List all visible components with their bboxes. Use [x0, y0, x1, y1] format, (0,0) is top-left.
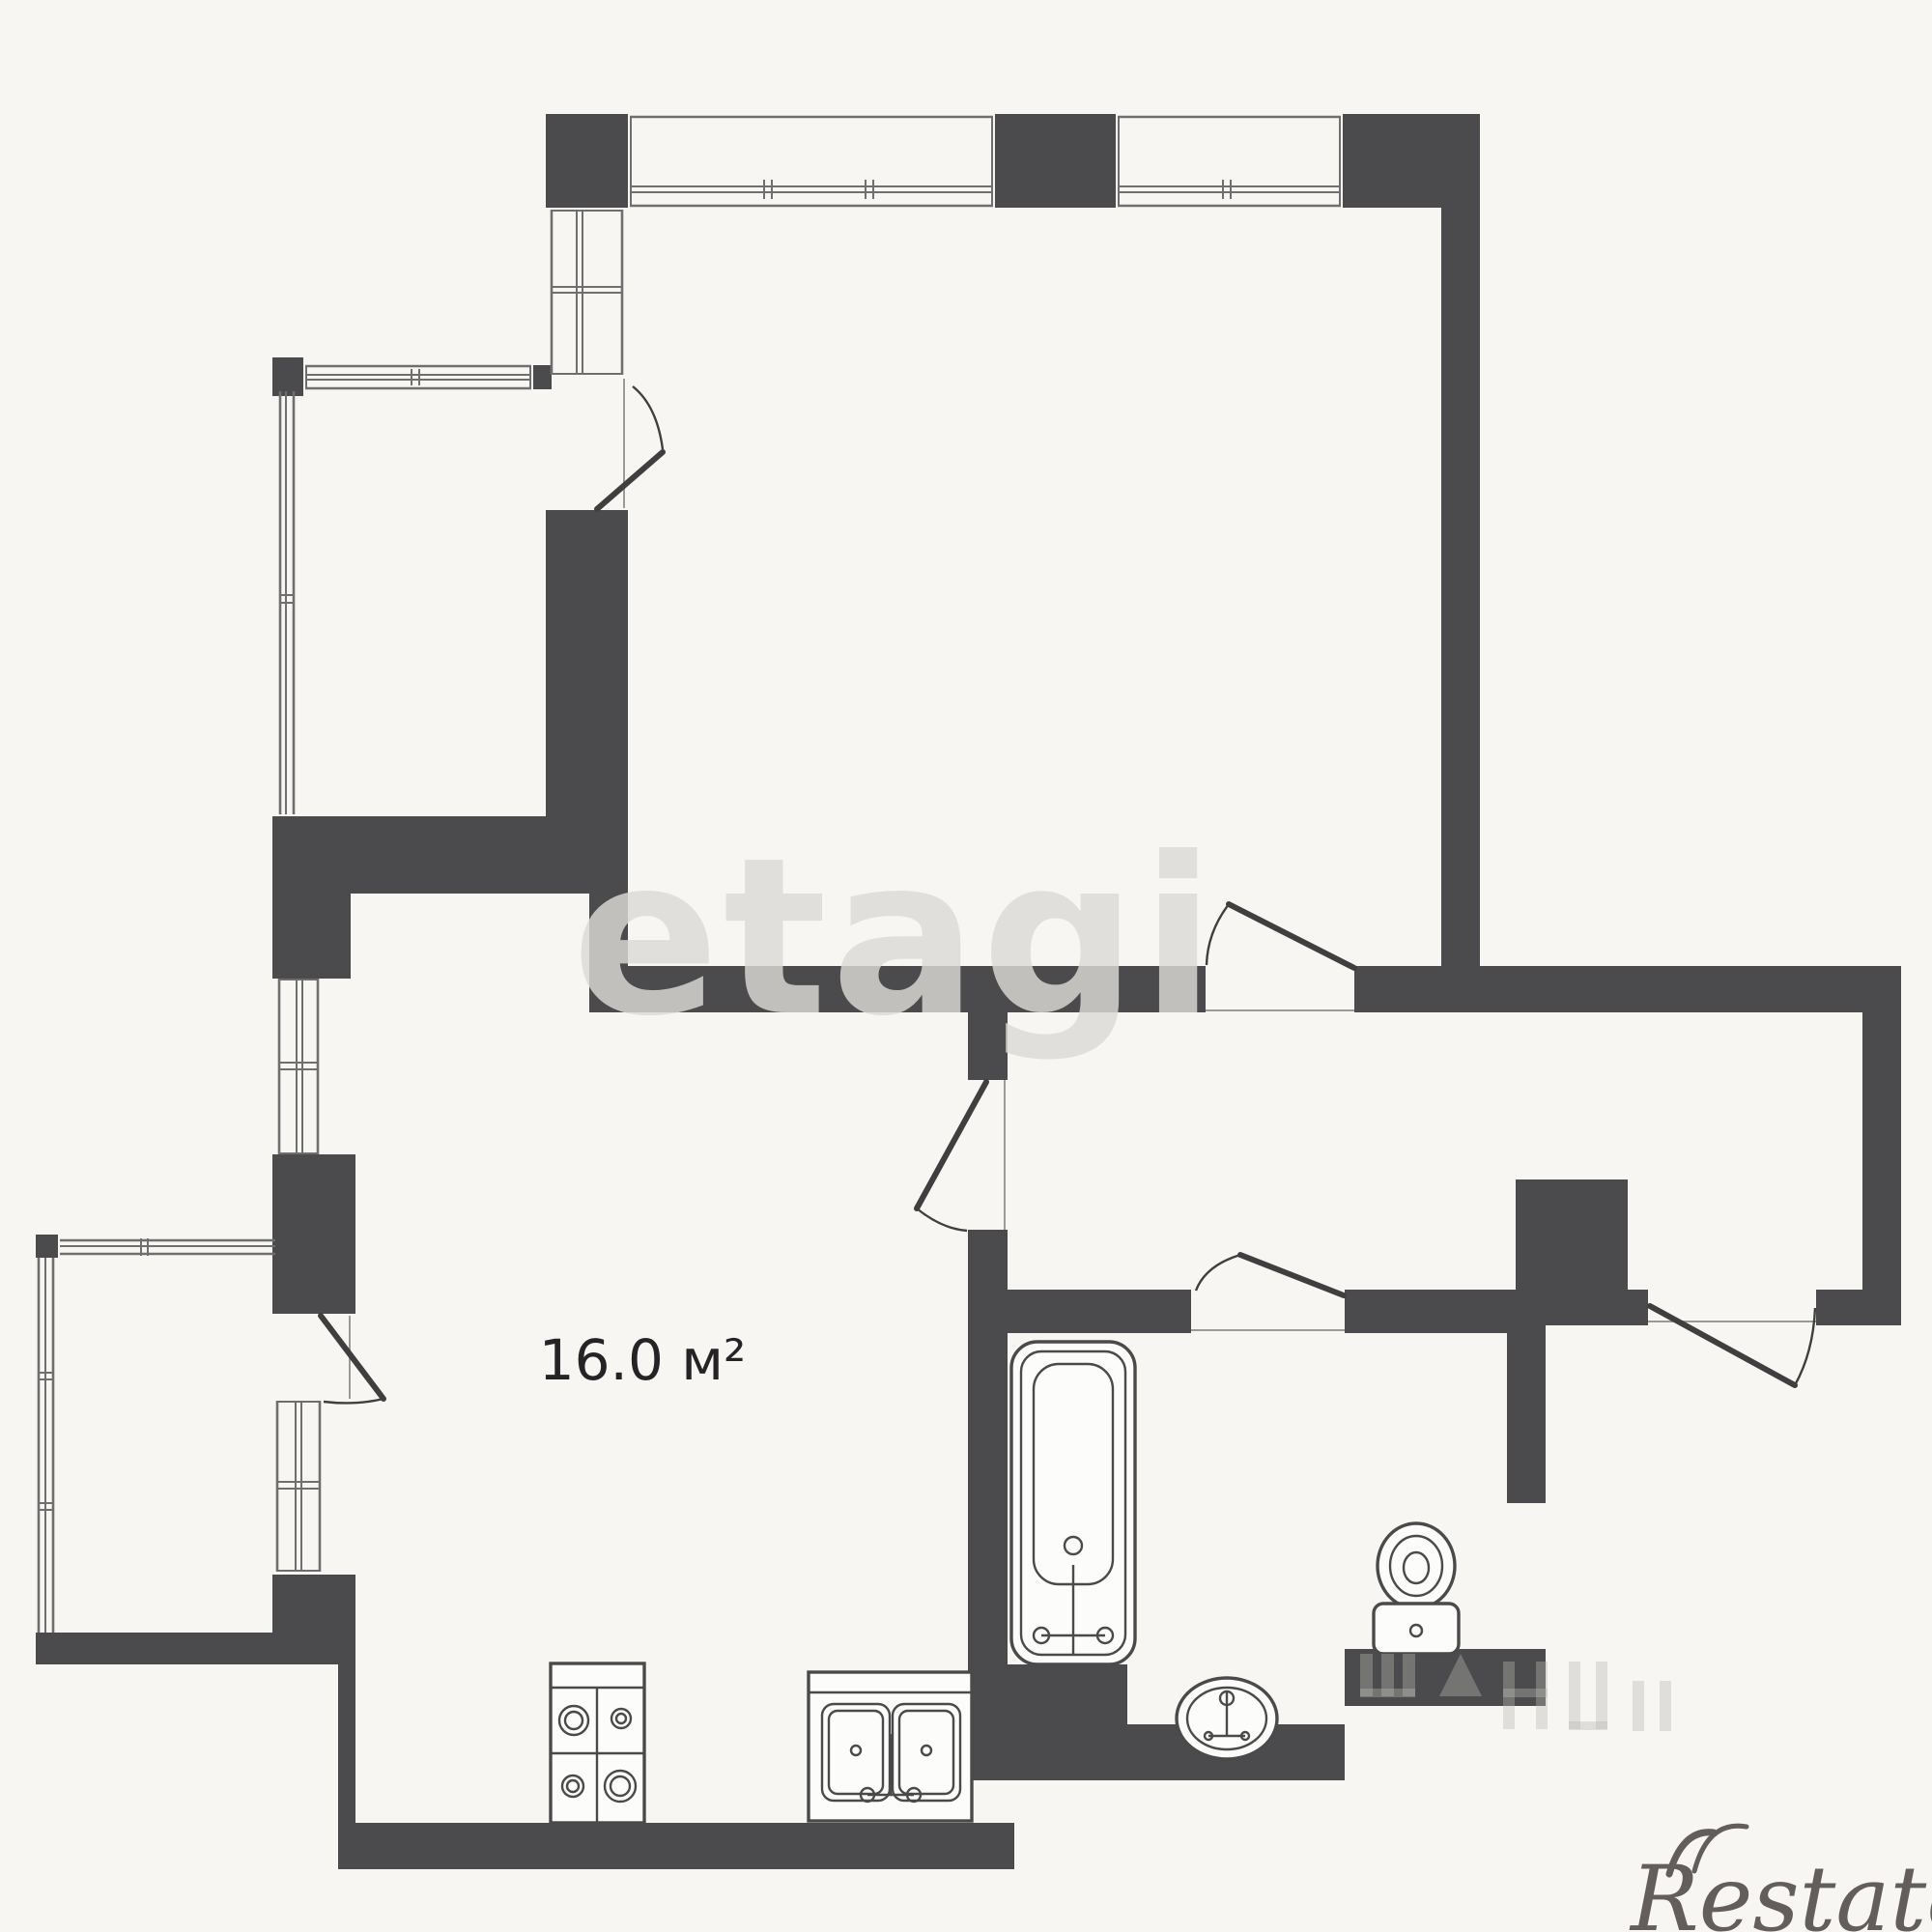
logo-restate-text: Restate [1629, 1847, 1932, 1932]
window-kitchen-west-upper [279, 979, 318, 1154]
window-balcony-top-left [280, 391, 294, 814]
wall-segment [1507, 1333, 1546, 1503]
wall-segment [272, 1154, 355, 1314]
wall-segment [546, 510, 628, 826]
stove-4-burner-icon [551, 1663, 644, 1823]
washbasin-icon [1177, 1678, 1277, 1759]
wall-segment [338, 1664, 355, 1823]
wall-segment [1441, 208, 1480, 1012]
wall-segment [272, 894, 351, 979]
window-kitchen-west-lower [277, 1401, 320, 1572]
wall-segment [533, 365, 552, 389]
toilet-icon [1374, 1523, 1459, 1654]
door-corridor-to-kitchen [917, 1080, 1005, 1231]
watermark-etagi: etagi [572, 811, 1219, 1065]
window-living-left [552, 210, 622, 375]
wall-segment [968, 1230, 1008, 1780]
window-balcony-bottom-top [60, 1238, 275, 1256]
room-area-label: 16.0 м² [539, 1327, 747, 1393]
wall-segment [1343, 114, 1480, 208]
wall-segment [36, 1633, 277, 1664]
wall-segment [546, 114, 628, 208]
logo-restate: Restate [1629, 1826, 1932, 1932]
window-balcony-bottom-left [39, 1258, 53, 1633]
window-living-top-1 [630, 117, 993, 206]
door-corridor-to-bathroom [1191, 1255, 1345, 1330]
kitchen-double-sink-icon [809, 1672, 972, 1821]
wall-segment [272, 357, 303, 396]
wall-segment [1008, 1664, 1127, 1780]
door-living-to-hall [1206, 904, 1354, 1010]
window-balcony-top-band [305, 366, 531, 388]
wall-segment [995, 114, 1116, 208]
wall-segment [1862, 966, 1901, 1325]
wall-segment [1345, 1290, 1546, 1333]
bathtub-icon [1011, 1342, 1135, 1664]
wall-segment [272, 1575, 355, 1664]
door-kitchen-to-balcony [321, 1316, 384, 1403]
wall-segment [1008, 1290, 1191, 1333]
door-living-to-balcony [597, 379, 663, 509]
door-entrance [1648, 1306, 1816, 1385]
wall-segment [1345, 1649, 1546, 1706]
floor-plan: 16.0 м² etagi Restate [0, 0, 1932, 1932]
wall-segment [1816, 1290, 1901, 1325]
wall-segment [1354, 966, 1864, 1012]
window-living-top-2 [1118, 117, 1341, 206]
wall-segment [1546, 1290, 1648, 1325]
wall-segment [338, 1823, 1014, 1869]
wall-segment [36, 1235, 58, 1258]
